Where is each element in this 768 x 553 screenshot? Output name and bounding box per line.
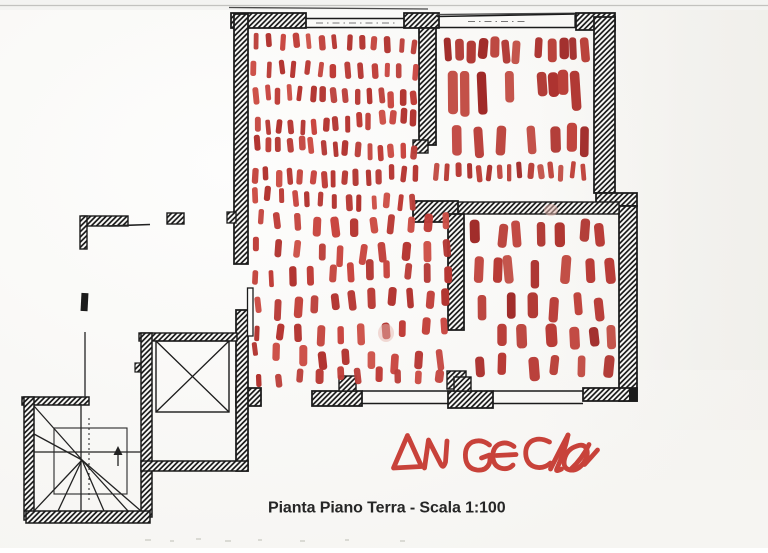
svg-text:Pianta Piano Terra - Scala 1:1: Pianta Piano Terra - Scala 1:100	[268, 500, 506, 517]
